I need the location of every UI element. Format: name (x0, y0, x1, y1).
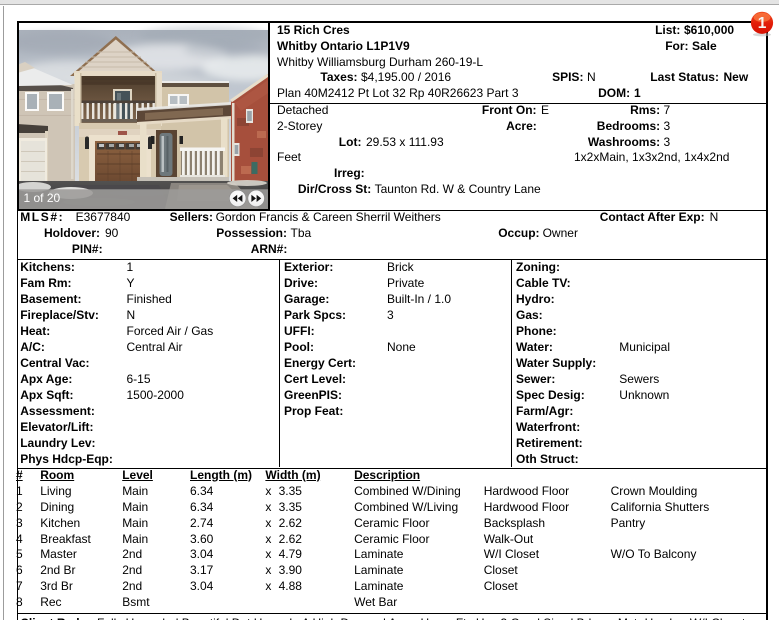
svg-text:1: 1 (758, 15, 767, 32)
